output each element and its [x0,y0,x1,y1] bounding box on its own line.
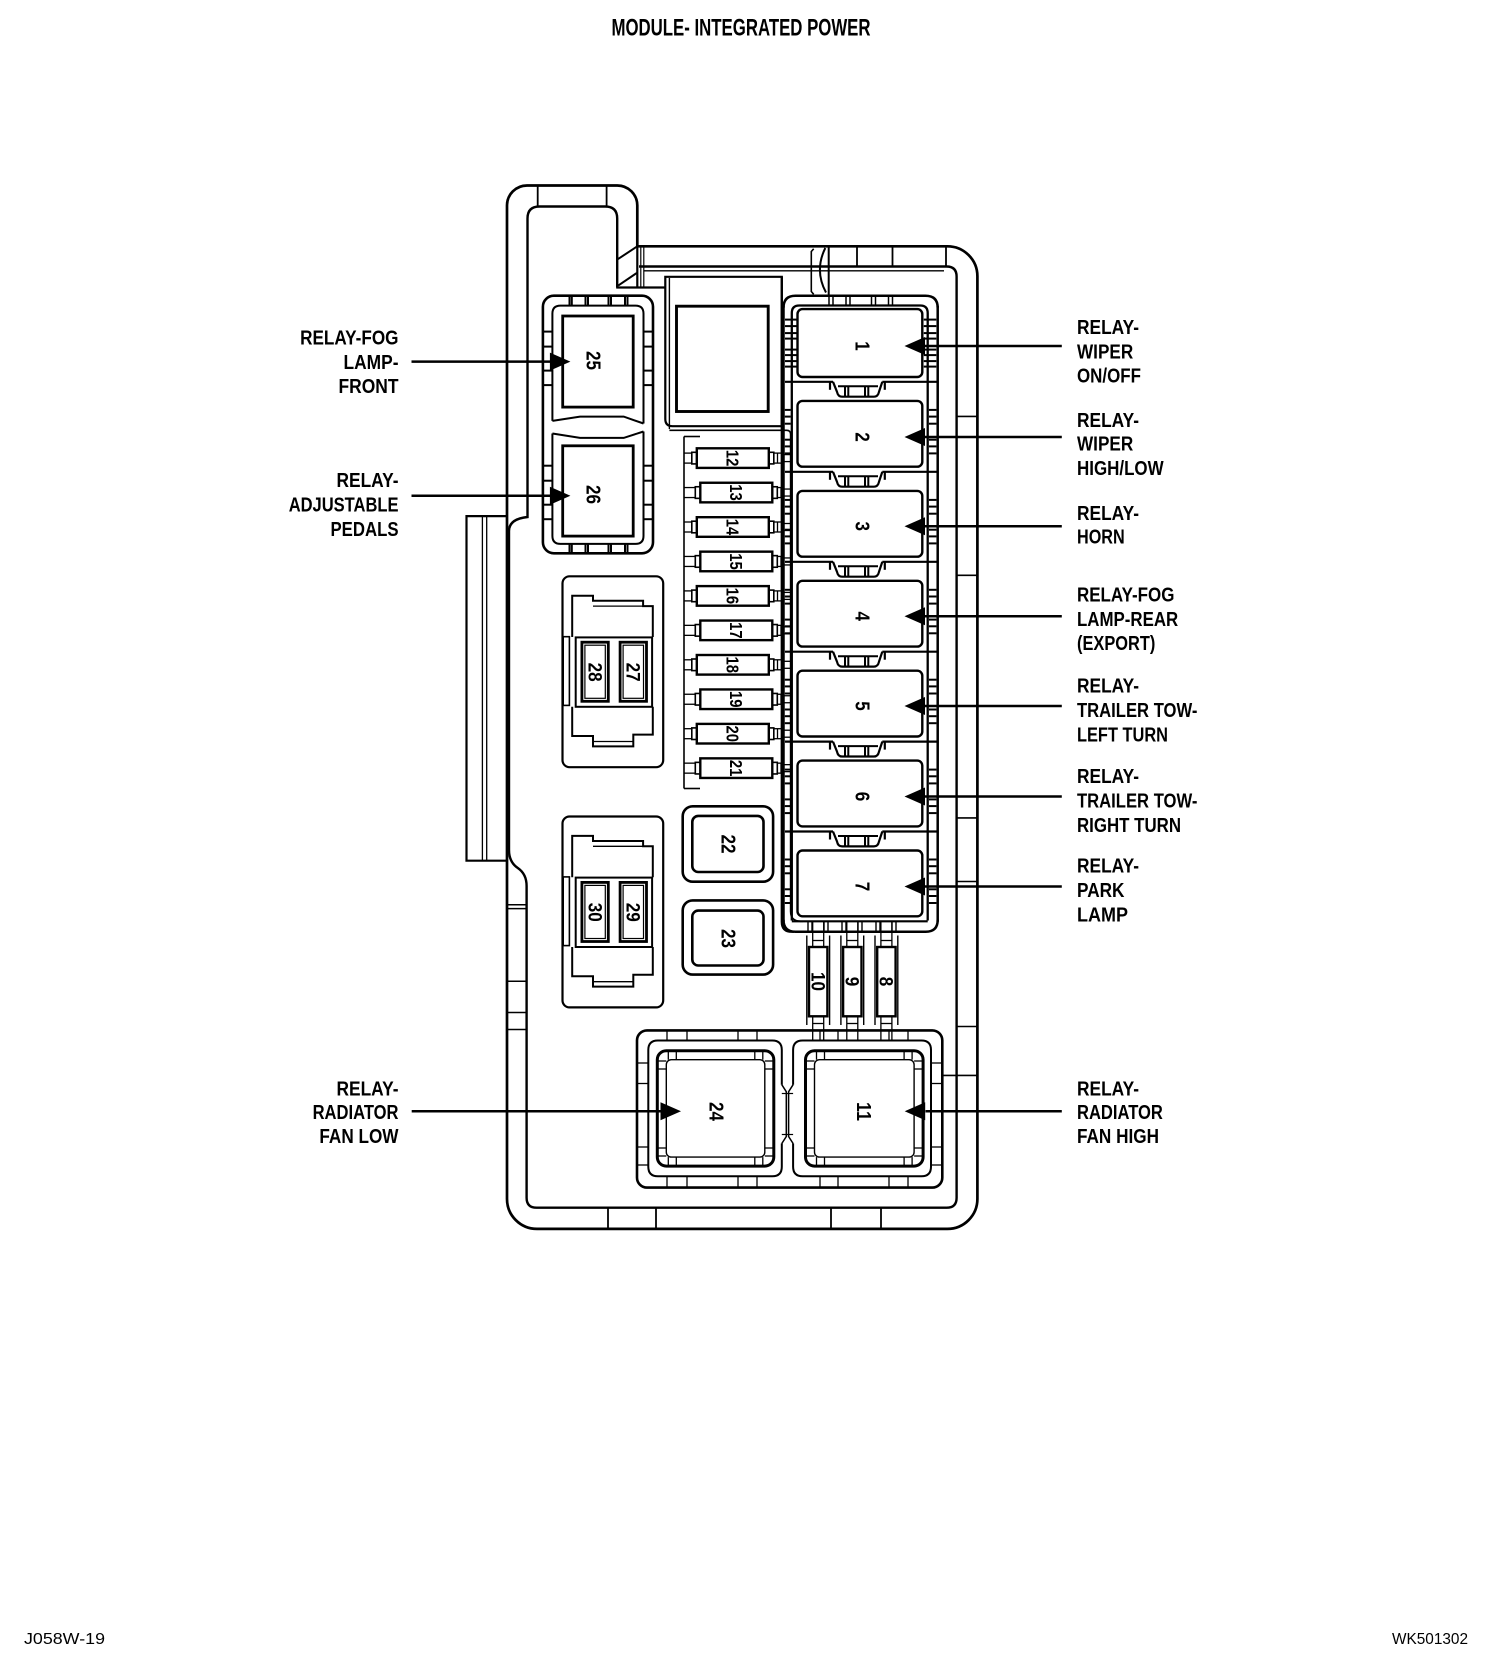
svg-text:LAMP: LAMP [1077,903,1128,926]
svg-text:RELAY-: RELAY- [1077,675,1139,698]
svg-text:LAMP-: LAMP- [344,351,399,374]
svg-text:FRONT: FRONT [339,375,399,398]
svg-text:21: 21 [726,760,746,777]
svg-text:6: 6 [850,792,872,802]
svg-text:RELAY-: RELAY- [1077,855,1139,878]
svg-text:LEFT TURN: LEFT TURN [1077,724,1168,747]
svg-text:20: 20 [722,725,742,742]
svg-text:2: 2 [850,432,872,442]
svg-text:RELAY-: RELAY- [1077,1078,1139,1101]
svg-text:RELAY-: RELAY- [1077,765,1139,788]
svg-text:RELAY-: RELAY- [1077,316,1139,339]
svg-text:10: 10 [806,972,827,991]
svg-text:22: 22 [716,835,738,854]
svg-text:28: 28 [583,663,604,682]
svg-text:LAMP-REAR: LAMP-REAR [1077,608,1178,631]
svg-text:29: 29 [621,903,642,922]
svg-text:4: 4 [850,611,872,621]
svg-text:27: 27 [621,663,642,682]
svg-text:HIGH/LOW: HIGH/LOW [1077,457,1164,480]
svg-text:RELAY-: RELAY- [337,1078,399,1101]
svg-text:9: 9 [840,977,861,987]
svg-text:PARK: PARK [1077,879,1125,902]
svg-text:PEDALS: PEDALS [331,518,399,541]
svg-text:ADJUSTABLE: ADJUSTABLE [289,493,399,516]
svg-text:5: 5 [850,701,872,711]
svg-text:13: 13 [726,484,746,501]
svg-text:8: 8 [875,977,896,987]
svg-text:11: 11 [852,1102,874,1121]
svg-text:25: 25 [581,351,603,370]
svg-text:RADIATOR: RADIATOR [1077,1101,1163,1124]
svg-text:ON/OFF: ON/OFF [1077,365,1141,388]
svg-text:RADIATOR: RADIATOR [313,1101,399,1124]
svg-text:RELAY-: RELAY- [1077,409,1139,432]
svg-text:3: 3 [850,522,872,532]
svg-text:(EXPORT): (EXPORT) [1077,632,1155,655]
svg-text:RELAY-FOG: RELAY-FOG [300,327,398,350]
svg-text:30: 30 [583,903,604,922]
svg-text:17: 17 [726,622,746,639]
svg-text:FAN LOW: FAN LOW [319,1125,399,1148]
svg-text:J058W-19: J058W-19 [24,1631,105,1648]
svg-text:26: 26 [581,485,603,504]
svg-text:RELAY-FOG: RELAY-FOG [1077,584,1174,607]
svg-text:WK501302: WK501302 [1392,1631,1468,1648]
svg-text:23: 23 [716,929,738,948]
svg-text:24: 24 [704,1102,726,1122]
svg-text:RIGHT TURN: RIGHT TURN [1077,814,1181,837]
svg-text:16: 16 [722,588,742,605]
svg-text:1: 1 [850,341,872,351]
svg-text:12: 12 [722,450,742,467]
svg-text:WIPER: WIPER [1077,433,1133,456]
svg-text:HORN: HORN [1077,526,1125,549]
svg-text:RELAY-: RELAY- [1077,502,1139,525]
svg-text:19: 19 [726,691,746,708]
svg-text:14: 14 [722,519,742,536]
svg-text:15: 15 [726,553,746,570]
svg-text:FAN HIGH: FAN HIGH [1077,1125,1159,1148]
svg-text:TRAILER TOW-: TRAILER TOW- [1077,790,1197,813]
svg-text:WIPER: WIPER [1077,341,1133,364]
svg-text:TRAILER TOW-: TRAILER TOW- [1077,699,1197,722]
svg-text:RELAY-: RELAY- [337,469,399,492]
svg-text:MODULE- INTEGRATED POWER: MODULE- INTEGRATED POWER [612,15,871,42]
svg-text:7: 7 [850,882,872,892]
svg-text:18: 18 [722,657,742,674]
